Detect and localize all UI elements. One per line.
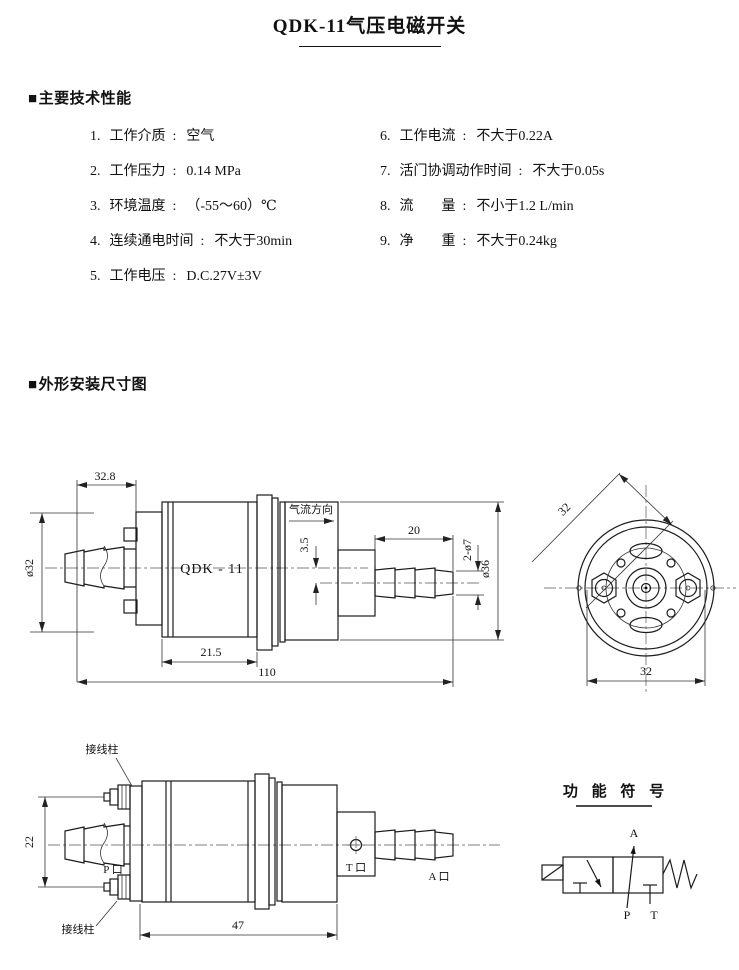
dimension-21-5: 21.5: [162, 639, 257, 667]
svg-text:110: 110: [258, 665, 276, 679]
spec-item: 8.流 量:不小于1.2 L/min: [380, 197, 604, 232]
dimension-32-8: 32.8: [77, 469, 136, 682]
spec-colon: :: [463, 199, 467, 214]
svg-text:21.5: 21.5: [201, 645, 222, 659]
spec-value: D.C.27V±3V: [186, 269, 261, 284]
spec-label: 工作电压: [110, 269, 166, 284]
spec-label: 连续通电时间: [110, 234, 194, 249]
dimension-20: 20: [375, 523, 453, 571]
spec-number: 3.: [90, 197, 101, 217]
spec-label: 工作电流: [400, 129, 456, 144]
spec-number: 5.: [90, 267, 101, 287]
drawing-front-view: 32 32: [530, 455, 739, 700]
svg-text:ø32: ø32: [22, 559, 36, 577]
spec-item: 9.净 重:不大于0.24kg: [380, 232, 604, 267]
terminal-plate: [124, 512, 162, 625]
spec-item: 6.工作电流:不大于0.22A: [380, 127, 604, 162]
svg-text:ø36: ø36: [478, 560, 492, 578]
spec-label: 活门协调动作时间: [400, 164, 512, 179]
valve-schematic: [542, 846, 697, 908]
port-t-label: T 口: [346, 862, 366, 874]
spec-list-right: 6.工作电流:不大于0.22A7.活门协调动作时间:不大于0.05s8.流 量:…: [380, 127, 604, 267]
spec-value: 0.14 MPa: [186, 164, 240, 179]
dimension-dia36: ø36: [340, 502, 504, 640]
spec-value: 空气: [186, 129, 214, 144]
spec-number: 2.: [90, 162, 101, 182]
spec-label: 净 重: [400, 234, 456, 249]
dimension-3-5: 3.5: [297, 538, 316, 606]
spec-item: 1.工作介质:空气: [90, 127, 292, 162]
spec-value: 不大于0.24kg: [476, 234, 557, 249]
svg-text:3.5: 3.5: [297, 538, 311, 553]
p-port-fitting: [65, 823, 130, 866]
spec-number: 1.: [90, 127, 101, 147]
spec-colon: :: [519, 164, 523, 179]
terminal-label-top: 接线柱: [86, 742, 119, 756]
t-port-block: T 口: [337, 812, 375, 876]
spec-value: 不大于30min: [214, 234, 292, 249]
airflow-direction-label: 气流方向: [289, 502, 333, 516]
model-label: QDK - 11: [180, 562, 243, 577]
page-title: QDK-11气压电磁开关: [0, 11, 739, 38]
port-a-label: A 口: [428, 871, 449, 883]
symbol-port-p-label: P: [624, 908, 631, 922]
leader-line-top: [116, 758, 132, 786]
port-p-label: P 口: [103, 864, 122, 876]
function-symbol-diagram: 功 能 符 号 A P T: [530, 775, 739, 945]
spec-number: 4.: [90, 232, 101, 252]
spec-label: 工作压力: [110, 164, 166, 179]
drawing-side-view-bottom: 接线柱 接线柱 22 P 口: [20, 728, 520, 968]
square-bullet-icon: ■: [28, 377, 38, 393]
svg-text:22: 22: [22, 836, 36, 848]
spec-colon: :: [173, 129, 177, 144]
section-heading-specs: ■主要技术性能: [28, 87, 132, 108]
dimension-47: 47: [140, 904, 337, 940]
spec-item: 3.环境温度:（-55～60）℃: [90, 197, 292, 232]
spec-list-left: 1.工作介质:空气2.工作压力:0.14 MPa3.环境温度:（-55～60）℃…: [90, 127, 292, 302]
spec-colon: :: [173, 164, 177, 179]
spec-colon: :: [463, 234, 467, 249]
function-symbol-title: 功 能 符 号: [563, 782, 669, 800]
spec-value: 不小于1.2 L/min: [476, 199, 573, 214]
spec-colon: :: [463, 129, 467, 144]
spec-item: 4.连续通电时间:不大于30min: [90, 232, 292, 267]
spec-value: （-55～60）℃: [186, 199, 276, 214]
symbol-port-t-label: T: [650, 908, 658, 922]
dimension-110: 110: [77, 596, 453, 687]
datasheet-page: QDK-11气压电磁开关 ■主要技术性能 1.工作介质:空气2.工作压力:0.1…: [0, 0, 739, 970]
spec-colon: :: [173, 199, 177, 214]
symbol-port-a-label: A: [630, 826, 639, 840]
spec-number: 8.: [380, 197, 391, 217]
section-heading-dimensions-label: 外形安装尺寸图: [39, 377, 148, 393]
leader-line-bottom: [96, 901, 117, 926]
title-underline: [299, 46, 441, 47]
dimension-dia32: ø32: [22, 513, 94, 632]
section-heading-specs-label: 主要技术性能: [39, 91, 132, 107]
spec-value: 不大于0.22A: [476, 129, 553, 144]
square-bullet-icon: ■: [28, 91, 38, 107]
svg-text:47: 47: [232, 918, 244, 932]
spec-number: 6.: [380, 127, 391, 147]
dimension-22: 22: [22, 797, 104, 887]
spec-number: 7.: [380, 162, 391, 182]
svg-text:32: 32: [555, 500, 573, 518]
terminal-label-bottom: 接线柱: [62, 922, 95, 936]
spec-colon: :: [201, 234, 205, 249]
terminal-post-top: [104, 785, 130, 809]
spec-item: 5.工作电压:D.C.27V±3V: [90, 267, 292, 302]
drawing-side-view-top: QDK - 11 气流方向 32.8 ø32 3.5 20 2-ø7: [20, 450, 520, 695]
spec-label: 流 量: [400, 199, 456, 214]
spec-item: 7.活门协调动作时间:不大于0.05s: [380, 162, 604, 197]
spec-value: 不大于0.05s: [532, 164, 604, 179]
terminal-post-bottom: [104, 875, 130, 899]
svg-text:32: 32: [640, 664, 652, 678]
spec-label: 工作介质: [110, 129, 166, 144]
p-port-fitting: [65, 546, 136, 589]
spec-item: 2.工作压力:0.14 MPa: [90, 162, 292, 197]
spec-number: 9.: [380, 232, 391, 252]
spec-label: 环境温度: [110, 199, 166, 214]
svg-text:20: 20: [408, 523, 420, 537]
svg-text:32.8: 32.8: [95, 469, 116, 483]
spec-colon: :: [173, 269, 177, 284]
section-heading-dimensions: ■外形安装尺寸图: [28, 373, 147, 394]
svg-text:2-ø7: 2-ø7: [460, 539, 474, 561]
solenoid-body: [130, 774, 337, 909]
